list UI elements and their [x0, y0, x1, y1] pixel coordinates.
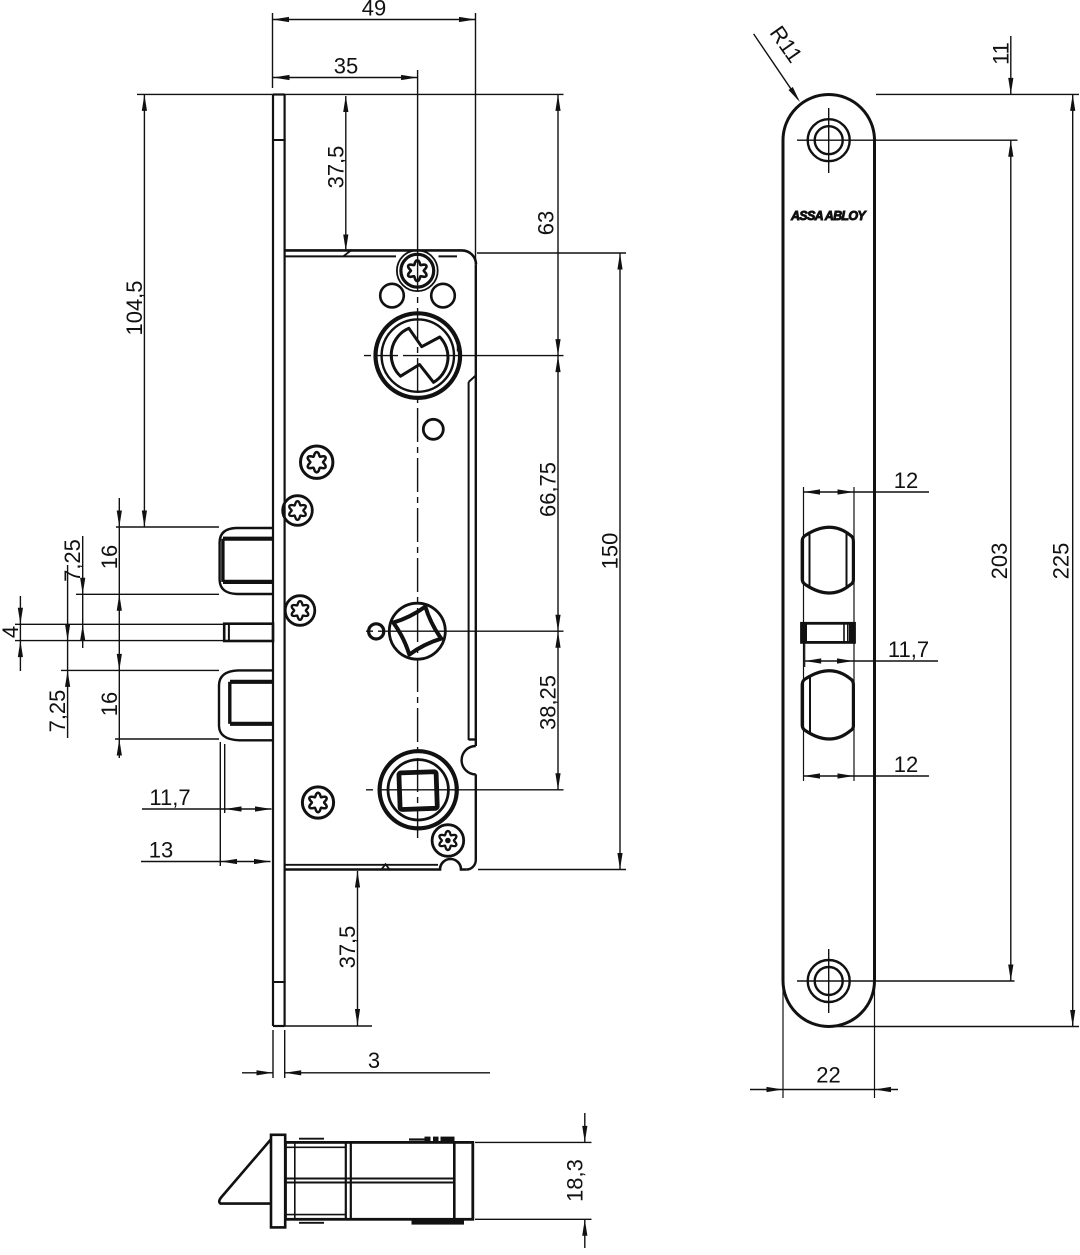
- svg-text:4: 4: [0, 626, 23, 638]
- svg-text:7,25: 7,25: [45, 690, 70, 733]
- svg-text:16: 16: [97, 545, 122, 569]
- svg-text:63: 63: [534, 211, 559, 235]
- svg-text:7,25: 7,25: [60, 539, 85, 582]
- svg-text:ASSA ABLOY: ASSA ABLOY: [790, 209, 867, 223]
- svg-text:38,25: 38,25: [536, 675, 561, 730]
- svg-text:18,3: 18,3: [562, 1159, 587, 1202]
- svg-text:12: 12: [894, 752, 918, 777]
- svg-text:3: 3: [368, 1048, 380, 1073]
- svg-text:35: 35: [334, 54, 358, 79]
- svg-text:37,5: 37,5: [335, 926, 360, 969]
- svg-text:22: 22: [816, 1063, 840, 1088]
- svg-text:12: 12: [894, 468, 918, 493]
- svg-text:11,7: 11,7: [149, 785, 190, 810]
- svg-text:225: 225: [1049, 543, 1074, 580]
- svg-text:11: 11: [988, 42, 1013, 65]
- svg-text:104,5: 104,5: [122, 280, 147, 335]
- svg-text:11,7: 11,7: [888, 637, 929, 662]
- svg-text:49: 49: [362, 0, 386, 21]
- svg-text:37,5: 37,5: [324, 146, 349, 189]
- svg-text:203: 203: [987, 543, 1012, 580]
- svg-text:150: 150: [598, 533, 623, 570]
- svg-text:16: 16: [97, 692, 122, 716]
- svg-text:13: 13: [149, 838, 173, 863]
- svg-text:66,75: 66,75: [536, 462, 561, 517]
